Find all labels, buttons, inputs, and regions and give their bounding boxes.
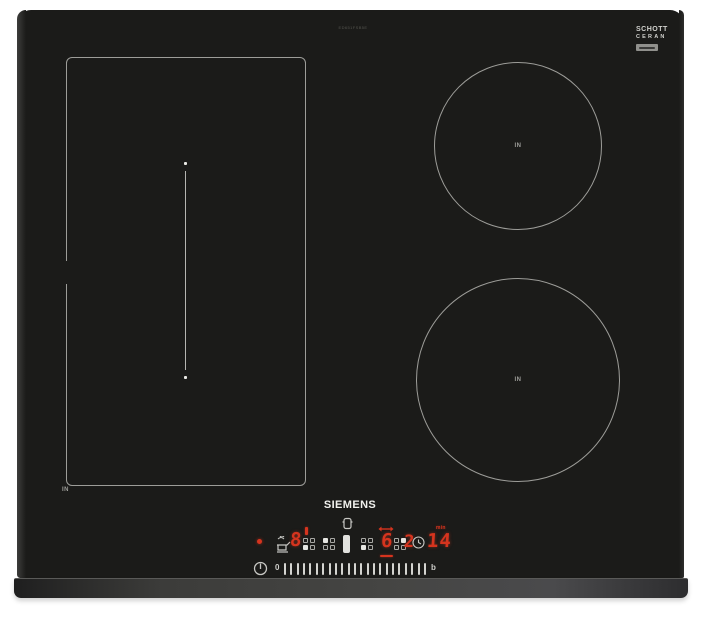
zone-key-cell bbox=[368, 538, 373, 543]
left-zone-power-display: 8 bbox=[289, 531, 302, 550]
zone-key-cell bbox=[368, 545, 373, 550]
power-slider[interactable] bbox=[284, 562, 426, 575]
pot-detect-icon bbox=[342, 517, 353, 530]
zone-key-cell bbox=[361, 545, 366, 550]
zone-key-cell bbox=[303, 545, 308, 550]
residual-heat-dot bbox=[257, 539, 262, 544]
zone-key-cell bbox=[303, 538, 308, 543]
flex-active-indicator bbox=[305, 527, 308, 535]
zone-key-cell bbox=[323, 538, 328, 543]
zone-key-cell bbox=[323, 545, 328, 550]
zone-key-cell bbox=[361, 538, 366, 543]
zone-key-cell bbox=[330, 538, 335, 543]
zone-key-cell bbox=[394, 545, 399, 550]
zone-key-cell bbox=[310, 545, 315, 550]
linked-zone-underline bbox=[380, 555, 393, 557]
zone-select-key-3[interactable] bbox=[361, 538, 373, 550]
pan-position-bar bbox=[343, 535, 350, 553]
timer-display: 14 bbox=[426, 532, 452, 551]
zone-key-cell bbox=[310, 538, 315, 543]
power-standby-icon[interactable] bbox=[253, 561, 268, 576]
center-zone-power-display: 6 bbox=[380, 532, 393, 551]
induction-hob: ED651FSB5E SCHOTT CERAN IN IN IN SIEMENS bbox=[17, 10, 684, 578]
zone-select-key-1[interactable] bbox=[303, 538, 315, 550]
slider-boost-label[interactable]: b bbox=[431, 563, 436, 572]
zone-select-key-2[interactable] bbox=[323, 538, 335, 550]
slider-zero-label: 0 bbox=[275, 563, 279, 572]
timer-clock-icon[interactable] bbox=[412, 536, 425, 549]
front-trim-strip bbox=[14, 578, 688, 598]
zone-key-cell bbox=[394, 538, 399, 543]
product-photo: ED651FSB5E SCHOTT CERAN IN IN IN SIEMENS bbox=[0, 0, 701, 618]
zone-key-cell bbox=[330, 545, 335, 550]
control-panel: 8 6 2 bbox=[17, 10, 684, 578]
